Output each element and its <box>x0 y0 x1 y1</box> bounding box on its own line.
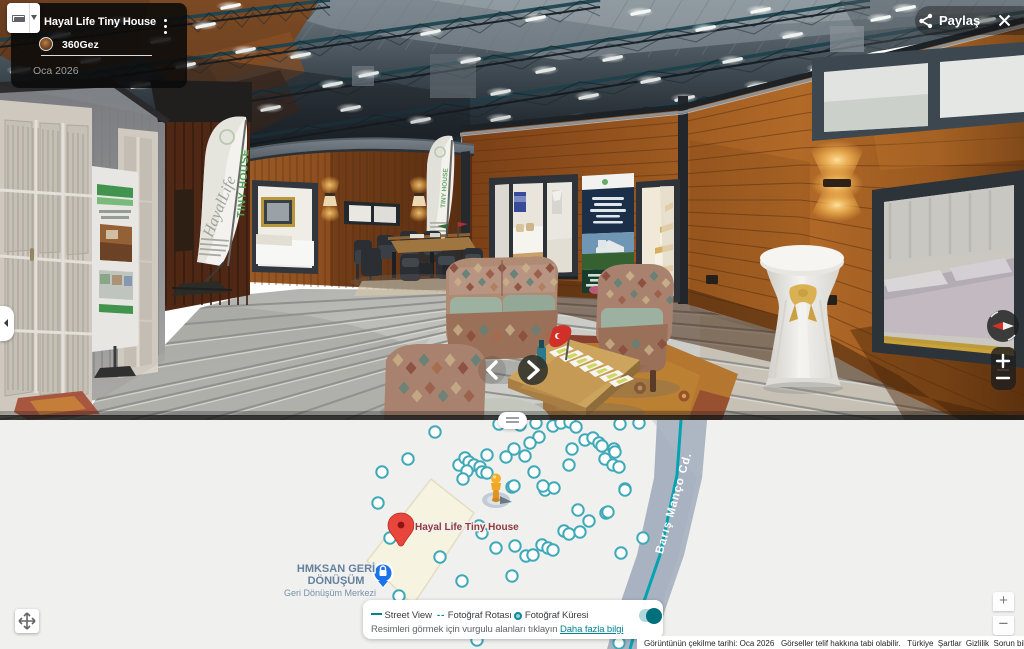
svg-text:HMKSAN GERİ: HMKSAN GERİ <box>297 562 375 575</box>
svg-text:Hayal Life Tiny House: Hayal Life Tiny House <box>415 522 519 533</box>
svg-text:Geri Dönüşüm Merkezi: Geri Dönüşüm Merkezi <box>284 588 376 598</box>
svg-text:DÖNÜŞÜM: DÖNÜŞÜM <box>308 574 365 587</box>
